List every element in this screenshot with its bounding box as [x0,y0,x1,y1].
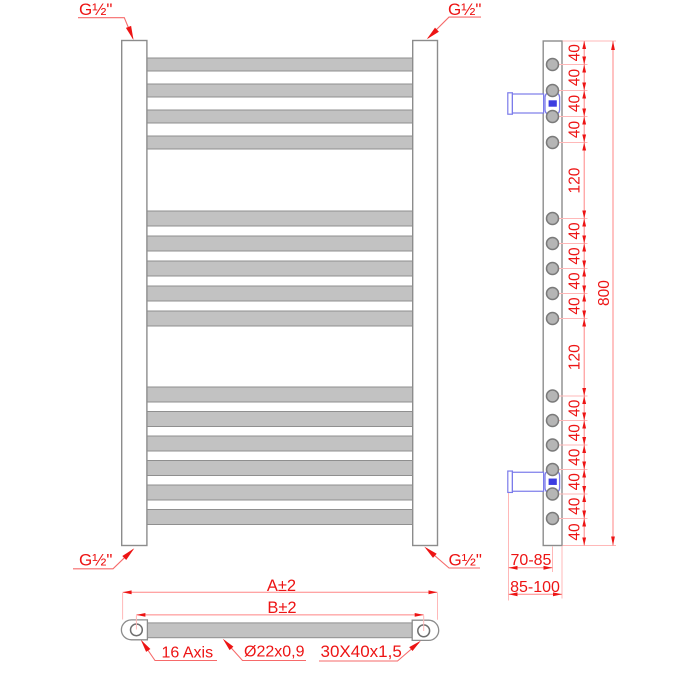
svg-text:G½": G½" [79,0,112,19]
svg-text:85-100: 85-100 [510,579,560,596]
svg-text:40: 40 [567,222,584,240]
svg-text:40: 40 [567,69,584,87]
svg-text:G½": G½" [79,551,112,570]
svg-text:40: 40 [567,523,584,541]
svg-text:16 Axis: 16 Axis [162,645,214,662]
svg-text:30X40x1,5: 30X40x1,5 [321,642,402,661]
svg-text:120: 120 [567,344,584,370]
svg-text:120: 120 [567,167,584,193]
svg-text:G½": G½" [449,551,482,570]
svg-text:40: 40 [567,399,584,417]
svg-text:40: 40 [567,121,584,139]
svg-text:40: 40 [567,473,584,491]
svg-text:40: 40 [567,272,584,290]
svg-text:70-85: 70-85 [511,552,552,569]
svg-text:40: 40 [567,297,584,315]
svg-text:40: 40 [567,497,584,515]
svg-text:800: 800 [596,280,613,306]
svg-text:40: 40 [567,424,584,442]
svg-text:40: 40 [567,44,584,62]
svg-text:40: 40 [567,95,584,113]
svg-text:B±2: B±2 [267,599,296,617]
svg-text:Ø22x0,9: Ø22x0,9 [244,644,305,661]
svg-text:G½": G½" [448,0,481,19]
svg-text:A±2: A±2 [267,577,296,595]
svg-text:40: 40 [567,448,584,466]
svg-text:40: 40 [567,247,584,265]
